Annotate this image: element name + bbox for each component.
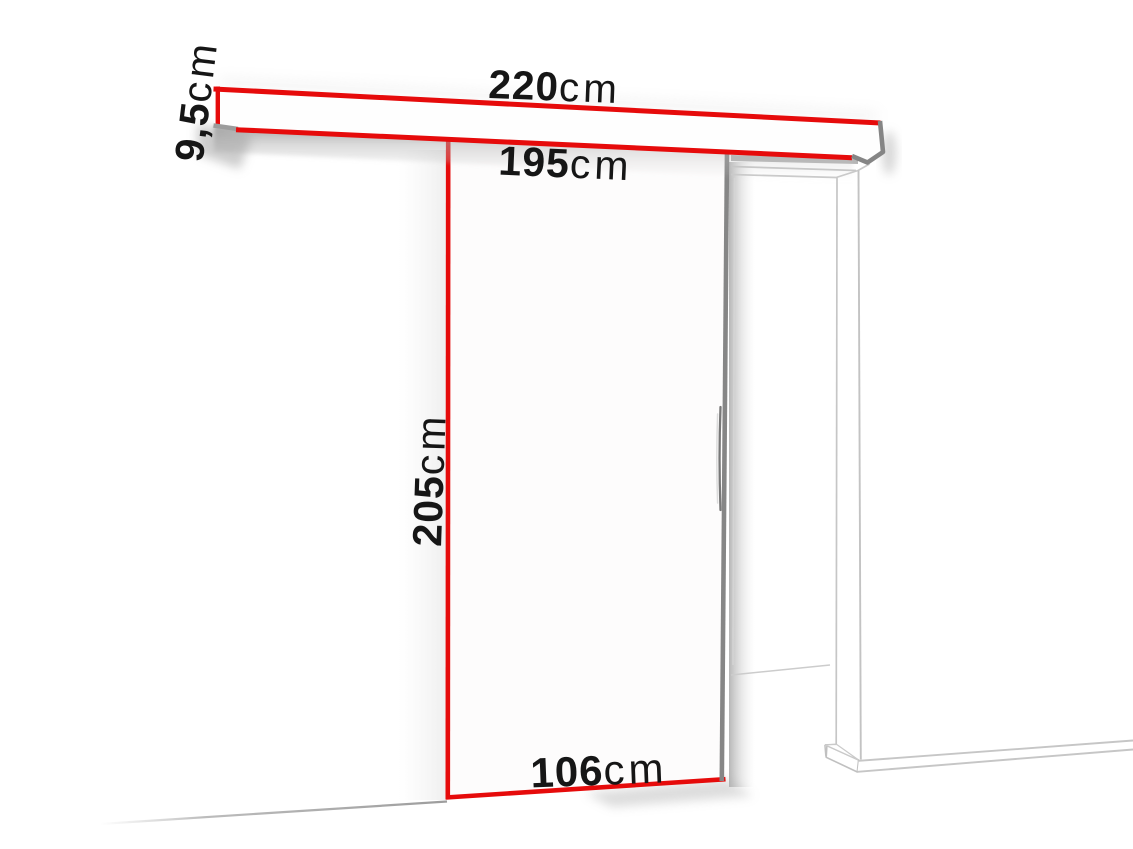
svg-text:220cm: 220cm [488, 61, 622, 112]
svg-text:195cm: 195cm [498, 138, 634, 190]
svg-text:106cm: 106cm [530, 744, 669, 796]
svg-text:205cm: 205cm [404, 412, 455, 548]
